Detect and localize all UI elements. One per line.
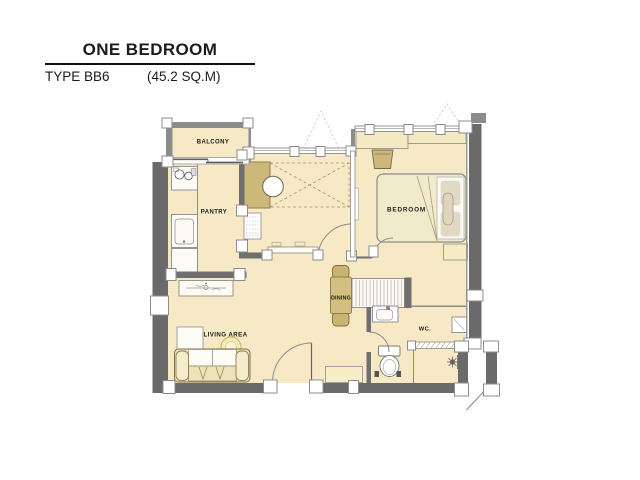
pantry-label: PANTRY — [201, 210, 227, 216]
floorplan-drawing: BALCONY PANTRY BEDROOM DINING LIVING ARE… — [0, 0, 640, 480]
console-table — [179, 281, 233, 297]
desk — [356, 131, 408, 149]
bolster — [443, 193, 453, 225]
floorplan-page: ONE BEDROOM TYPE BB6 (45.2 SQ.M) — [0, 0, 640, 480]
water-heater — [452, 317, 467, 333]
washbasin — [373, 306, 399, 322]
sofa — [175, 349, 251, 382]
dining-chair — [333, 313, 350, 327]
stove — [172, 167, 198, 191]
sofa-armrest — [176, 351, 189, 381]
shower-screen — [413, 342, 458, 349]
sliding-partition — [351, 151, 356, 257]
kitchen-sink — [172, 215, 198, 248]
sofa-armrest — [236, 351, 249, 381]
window-strip — [251, 148, 351, 154]
side-table — [177, 327, 203, 352]
stool — [372, 150, 393, 169]
balcony-label: BALCONY — [197, 140, 229, 146]
dining-label: DINING — [331, 296, 351, 302]
bedroom-label: BEDROOM — [387, 207, 426, 214]
refrigerator — [244, 213, 261, 239]
wardrobe — [352, 279, 405, 308]
living-area-label: LIVING AREA — [203, 332, 247, 339]
nightstand — [444, 244, 468, 260]
wc-label: WC. — [419, 327, 431, 333]
